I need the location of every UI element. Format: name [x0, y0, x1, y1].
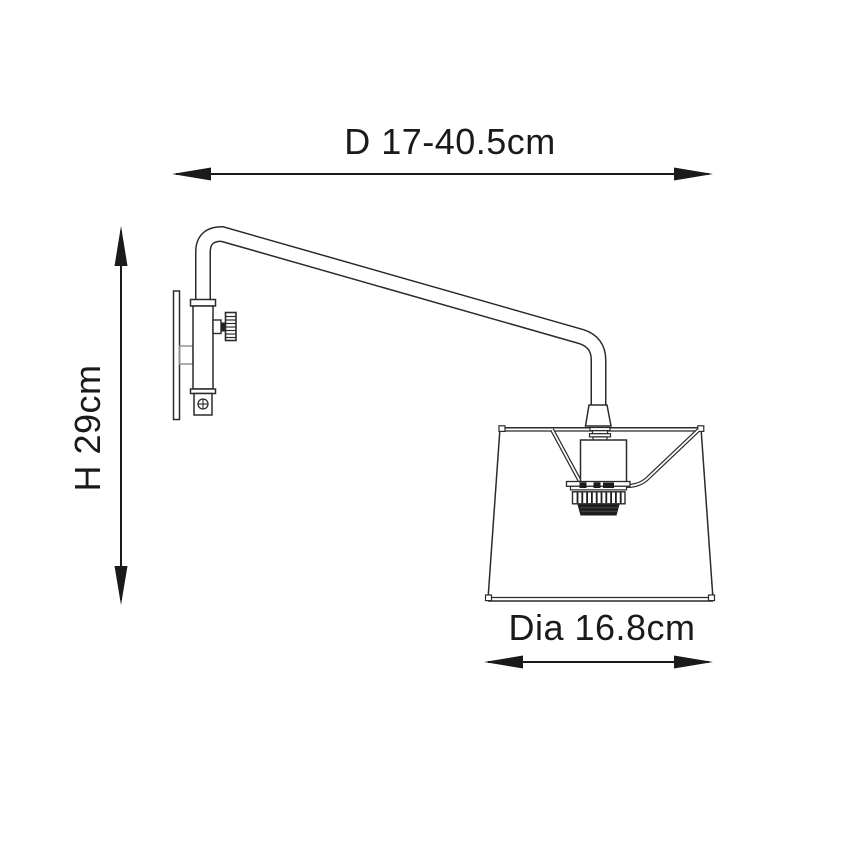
- wall-bracket: [180, 346, 194, 364]
- lamp-technical-drawing: D 17-40.5cm H 29cm Dia 16.8cm: [0, 0, 868, 868]
- line-drawing-canvas: [0, 0, 868, 868]
- socket-collar: [590, 428, 611, 441]
- depth-dimension-arrow-icon: [172, 168, 713, 181]
- swing-arm: [203, 234, 599, 406]
- socket-thread-ring: [573, 492, 626, 504]
- thumbscrew-knob: [213, 313, 236, 341]
- height-dimension-arrow-icon: [115, 226, 128, 605]
- mounting-post: [191, 300, 216, 416]
- diameter-dimension-arrow-icon: [484, 656, 713, 669]
- socket-cap: [578, 505, 620, 516]
- wall-plate: [174, 291, 180, 420]
- socket-clamp-tabs: [580, 482, 615, 488]
- arm-elbow-taper: [586, 405, 612, 426]
